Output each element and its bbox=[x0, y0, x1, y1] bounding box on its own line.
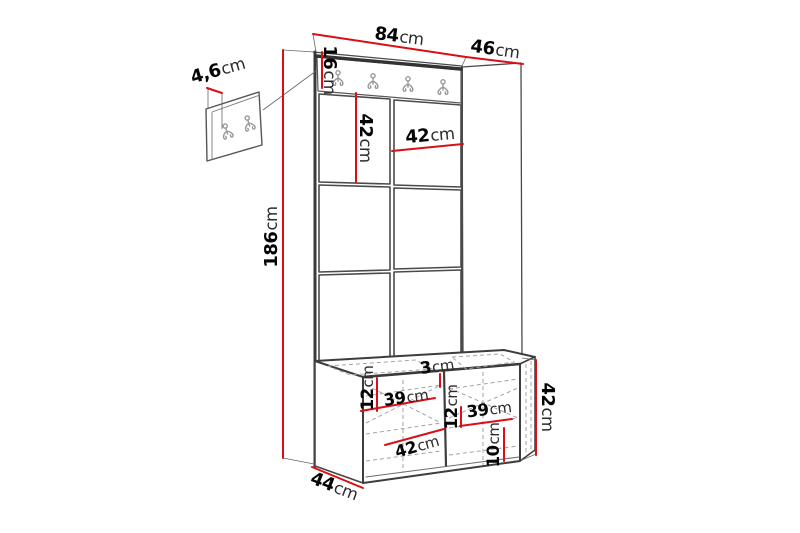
dim-label-base-height: 10cm bbox=[486, 423, 503, 468]
dim-label-seat-height-right: 12cm bbox=[444, 385, 461, 430]
detail-connector-line bbox=[263, 71, 316, 110]
dimension-diagram: 84cm 46cm 4,6cm 16cm 186cm 42cm 42cm 12c… bbox=[0, 0, 800, 533]
small-hook-panel bbox=[206, 71, 316, 161]
panel-cell bbox=[394, 270, 461, 358]
dim-line-thickness-46mm bbox=[207, 88, 222, 93]
small-panel-face bbox=[206, 92, 262, 161]
panel-cell bbox=[394, 188, 461, 269]
dim-label-panel-height: 42cm bbox=[356, 113, 374, 162]
panel-cell bbox=[319, 94, 390, 184]
panel-cell bbox=[319, 273, 390, 361]
bench-right-side-face bbox=[520, 357, 535, 461]
dim-label-rail-height: 16cm bbox=[320, 45, 338, 94]
dim-label-seat-height-left: 12cm bbox=[360, 366, 377, 411]
bench-left-side-face bbox=[315, 361, 363, 483]
unit-right-side-face bbox=[462, 63, 522, 358]
dim-label-height-total: 186cm bbox=[263, 206, 281, 267]
panel-cell bbox=[319, 185, 390, 272]
dim-label-bench-height: 42cm bbox=[538, 382, 556, 431]
